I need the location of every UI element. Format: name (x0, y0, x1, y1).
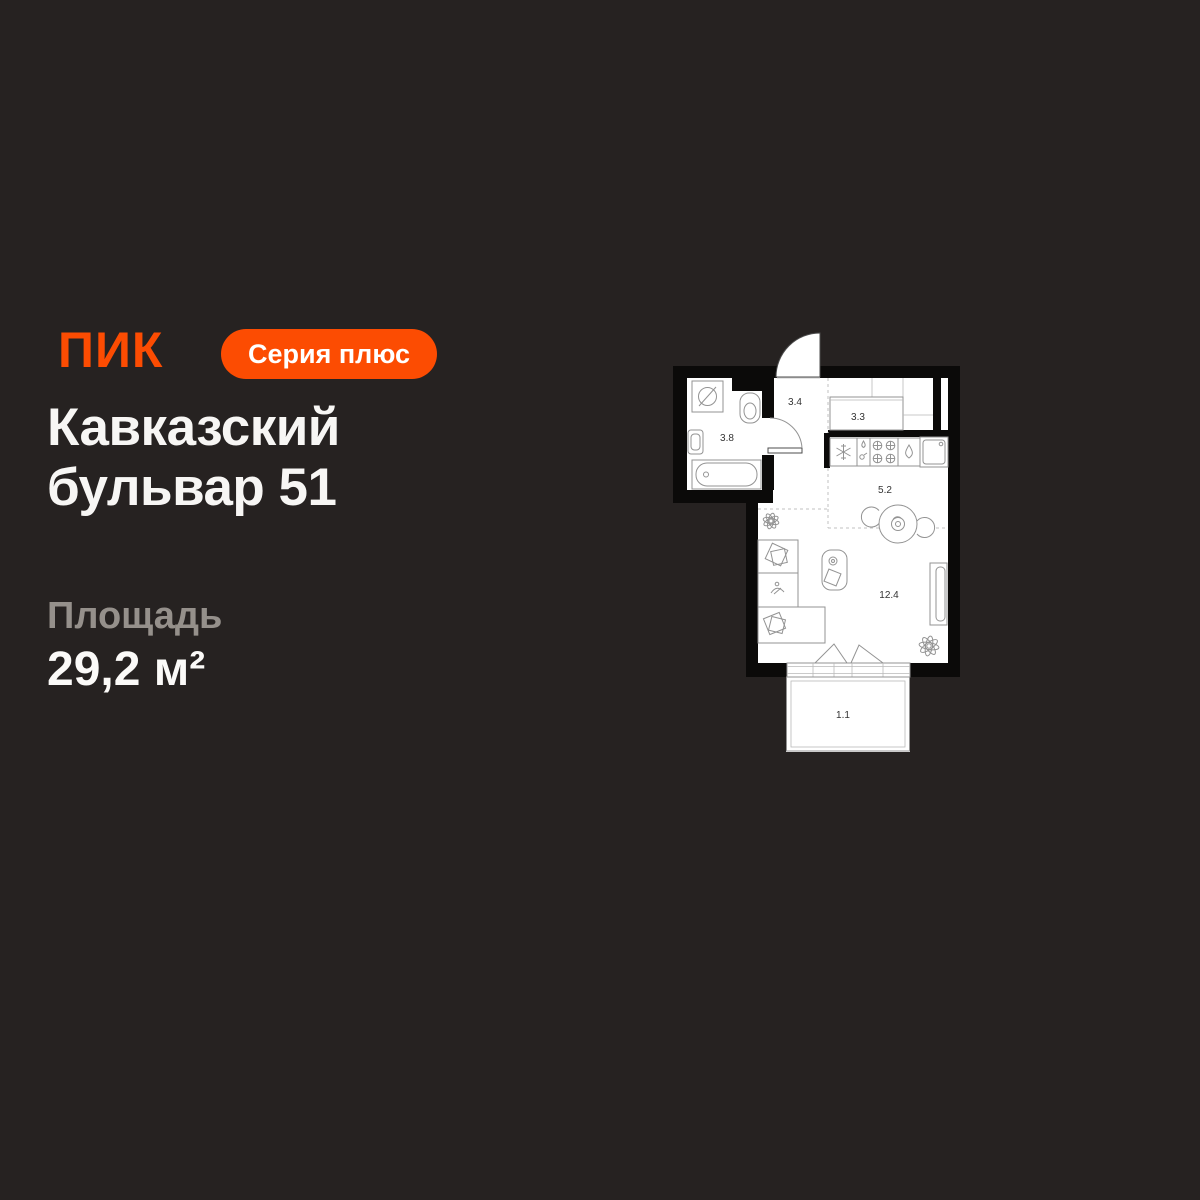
series-badge-label: Серия плюс (248, 339, 410, 370)
entrance-door-icon (776, 333, 820, 378)
room-label-living-room: 12.4 (879, 590, 899, 601)
room-label-kitchen: 5.2 (878, 485, 892, 496)
room-label-hallway: 3.4 (788, 397, 802, 408)
floorplan-svg: 3.8 3.4 3.3 5.2 12.4 1.1 (660, 322, 962, 754)
floorplan-floor (687, 366, 948, 752)
series-badge: Серия плюс (221, 329, 437, 379)
title-line-2: бульвар 51 (47, 458, 340, 518)
page-title: Кавказский бульвар 51 (47, 398, 340, 518)
area-value: 29,2 м² (47, 642, 222, 698)
area-block: Площадь 29,2 м² (47, 594, 222, 698)
title-line-1: Кавказский (47, 398, 340, 458)
room-label-bathroom: 3.8 (720, 433, 734, 444)
pik-logo: ПИК (58, 322, 163, 378)
room-label-balcony: 1.1 (836, 710, 850, 721)
listing-card: ПИК Серия плюс Кавказский бульвар 51 Пло… (0, 0, 1200, 1200)
area-label: Площадь (47, 594, 222, 638)
floorplan: 3.8 3.4 3.3 5.2 12.4 1.1 (660, 322, 962, 754)
room-label-closet: 3.3 (851, 412, 865, 423)
